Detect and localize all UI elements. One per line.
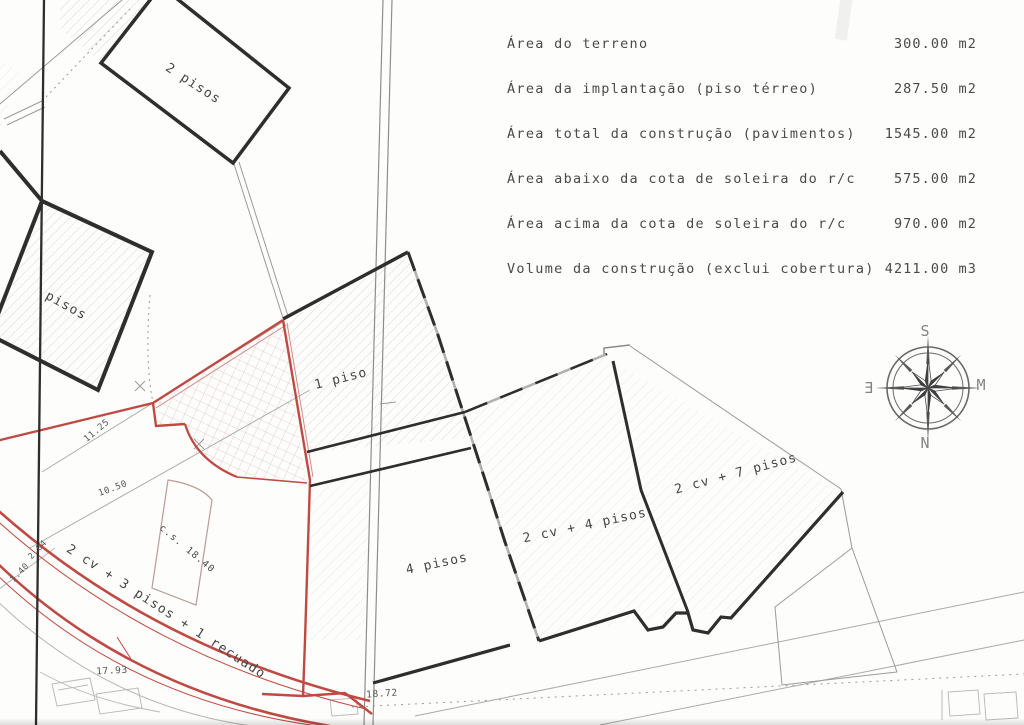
site-plan-document: Área do terreno 300.00 m2 Área da implan… bbox=[0, 0, 1024, 725]
row-label: Volume da construção (exclui cobertura) bbox=[507, 261, 875, 277]
table-row: Área do terreno 300.00 m2 bbox=[507, 36, 977, 54]
table-row: Volume da construção (exclui cobertura) … bbox=[507, 261, 977, 279]
compass-letter-top: S bbox=[920, 322, 929, 340]
row-value: 300.00 m2 bbox=[894, 36, 977, 52]
dimension-17-93: 17.93 bbox=[96, 665, 128, 678]
row-label: Área acima da cota de soleira do r/c bbox=[507, 216, 846, 232]
row-value: 4211.00 m3 bbox=[885, 261, 977, 277]
row-label: Área total da construção (pavimentos) bbox=[507, 126, 856, 142]
row-label: Área da implantação (piso térreo) bbox=[507, 81, 818, 97]
row-value: 287.50 m2 bbox=[894, 81, 977, 97]
compass-letter-bottom: N bbox=[920, 434, 929, 452]
table-row: Área total da construção (pavimentos) 15… bbox=[507, 126, 977, 144]
row-label: Área do terreno bbox=[507, 36, 648, 52]
row-value: 1545.00 m2 bbox=[885, 126, 977, 142]
table-row: Área abaixo da cota de soleira do r/c 57… bbox=[507, 171, 977, 189]
row-value: 575.00 m2 bbox=[894, 171, 977, 187]
compass-letter-left: E bbox=[864, 379, 873, 397]
compass-rose bbox=[875, 335, 981, 441]
scan-edge-shadow bbox=[0, 718, 1024, 725]
area-statistics-table: Área do terreno 300.00 m2 Área da implan… bbox=[507, 36, 977, 306]
compass-letter-right: M bbox=[976, 376, 985, 394]
red-road-arc-inner bbox=[0, 558, 330, 725]
dimension-18-72: 18.72 bbox=[366, 687, 398, 700]
table-row: Área acima da cota de soleira do r/c 970… bbox=[507, 216, 977, 234]
table-row: Área da implantação (piso térreo) 287.50… bbox=[507, 81, 977, 99]
parcel-crosshatch bbox=[158, 322, 306, 481]
row-value: 970.00 m2 bbox=[894, 216, 977, 232]
row-label: Área abaixo da cota de soleira do r/c bbox=[507, 171, 856, 187]
